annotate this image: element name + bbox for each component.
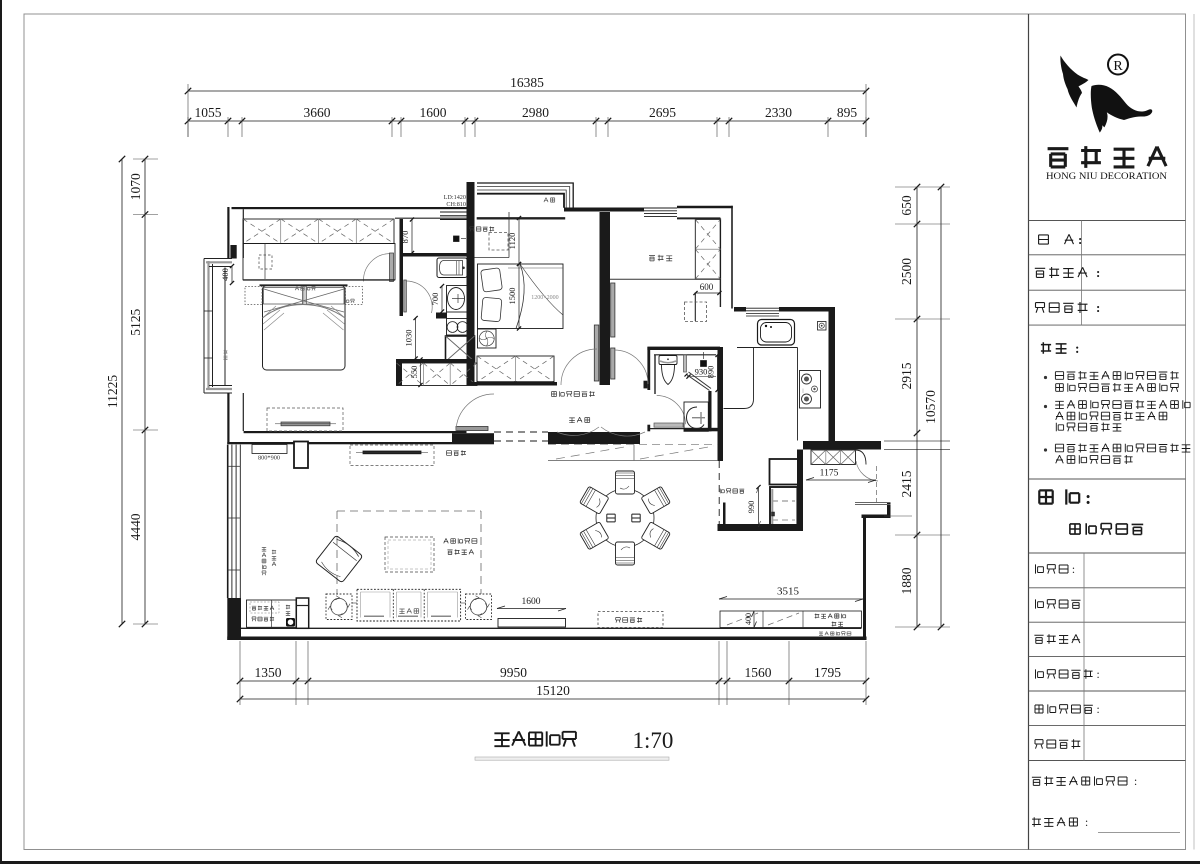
svg-text::: :	[1097, 704, 1100, 716]
svg-text::: :	[1072, 564, 1075, 576]
svg-text:1795: 1795	[814, 665, 841, 680]
svg-text:CH:810: CH:810	[446, 201, 466, 208]
svg-text:1880: 1880	[899, 567, 914, 594]
svg-text:LD:1420: LD:1420	[444, 194, 466, 201]
svg-text:600: 600	[700, 282, 714, 292]
svg-text:400: 400	[220, 268, 230, 281]
svg-text:3515: 3515	[777, 586, 800, 598]
svg-text::: :	[1097, 669, 1100, 681]
svg-text:3660: 3660	[304, 105, 331, 120]
svg-text:1070: 1070	[128, 173, 143, 200]
svg-text:550: 550	[409, 366, 419, 379]
svg-text:890: 890	[706, 366, 716, 379]
svg-text::: :	[1096, 265, 1100, 280]
svg-text:1030: 1030	[404, 330, 414, 347]
svg-text:650: 650	[899, 195, 914, 216]
svg-text:15120: 15120	[536, 683, 570, 698]
svg-text::: :	[1134, 776, 1137, 788]
svg-text:400: 400	[744, 613, 753, 625]
svg-text:HONG NIU DECORATION: HONG NIU DECORATION	[1046, 172, 1167, 182]
svg-text:R: R	[1113, 59, 1123, 74]
svg-text:2330: 2330	[765, 105, 792, 120]
svg-text:2500: 2500	[899, 258, 914, 285]
svg-text:4440: 4440	[128, 513, 143, 540]
svg-text:990: 990	[746, 501, 756, 514]
svg-text:|: |	[802, 389, 803, 394]
svg-text:11225: 11225	[105, 375, 120, 408]
svg-text:1350: 1350	[255, 665, 282, 680]
svg-text:800*900: 800*900	[258, 455, 280, 462]
svg-text::: :	[1078, 232, 1082, 247]
svg-text:1200×2000: 1200×2000	[531, 295, 558, 301]
svg-text:870: 870	[400, 231, 410, 244]
svg-text::: :	[1096, 300, 1100, 315]
svg-text:700: 700	[430, 293, 440, 306]
svg-text::: :	[1085, 488, 1091, 509]
svg-text::: :	[1075, 341, 1080, 356]
svg-text:1600: 1600	[522, 597, 541, 607]
svg-text:1500: 1500	[507, 288, 517, 305]
svg-text:16385: 16385	[510, 75, 544, 90]
svg-text:1175: 1175	[820, 469, 839, 479]
svg-text:1560: 1560	[745, 665, 772, 680]
svg-text:5125: 5125	[128, 309, 143, 336]
svg-text:895: 895	[837, 105, 858, 120]
svg-text:1055: 1055	[195, 105, 222, 120]
svg-text:2695: 2695	[649, 105, 676, 120]
svg-text:9950: 9950	[500, 665, 527, 680]
svg-text:1:70: 1:70	[633, 728, 674, 753]
svg-text:2915: 2915	[899, 362, 914, 389]
svg-text:10570: 10570	[923, 390, 938, 424]
svg-text:1120: 1120	[507, 233, 517, 250]
svg-text:2980: 2980	[522, 105, 549, 120]
svg-text:2415: 2415	[899, 470, 914, 497]
svg-text::: :	[1085, 817, 1088, 829]
svg-text:1600: 1600	[420, 105, 447, 120]
